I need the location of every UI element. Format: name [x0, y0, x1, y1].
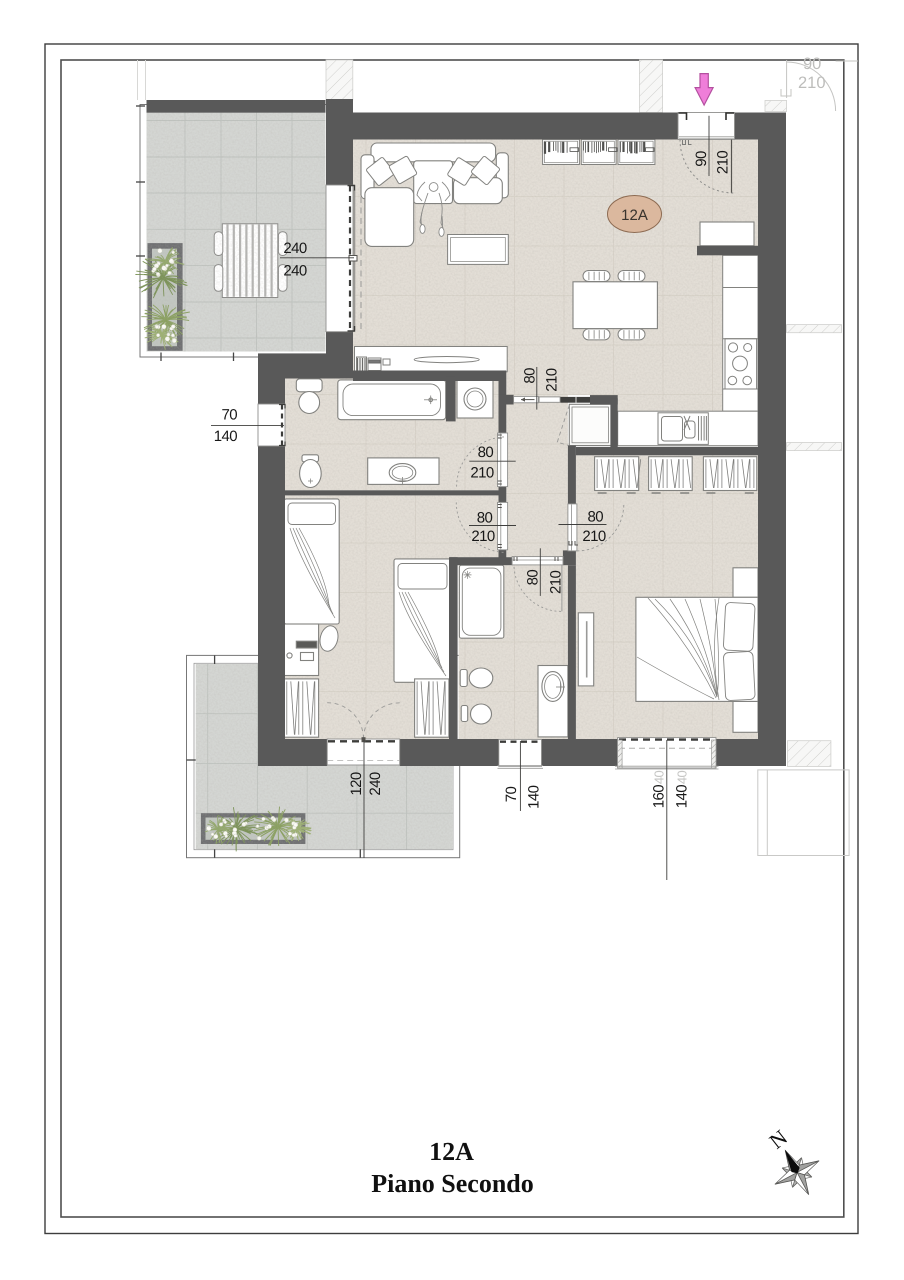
svg-text:80: 80: [478, 444, 494, 461]
svg-text:140: 140: [674, 785, 691, 808]
svg-text:160: 160: [651, 785, 668, 808]
svg-text:120: 120: [348, 772, 365, 795]
svg-text:240: 240: [283, 240, 306, 257]
svg-text:80: 80: [524, 570, 541, 586]
svg-text:140: 140: [214, 428, 237, 445]
svg-text:210: 210: [543, 368, 560, 391]
svg-text:210: 210: [470, 465, 493, 482]
svg-text:40: 40: [675, 771, 690, 785]
svg-text:12A: 12A: [621, 207, 648, 224]
svg-text:140: 140: [525, 785, 542, 808]
svg-text:90: 90: [803, 55, 821, 73]
svg-text:210: 210: [714, 151, 731, 174]
svg-text:240: 240: [283, 263, 306, 280]
svg-text:80: 80: [477, 510, 493, 527]
svg-text:240: 240: [367, 772, 384, 795]
svg-text:80: 80: [522, 368, 539, 384]
svg-text:80: 80: [588, 509, 604, 526]
svg-text:Piano Secondo: Piano Secondo: [371, 1169, 534, 1198]
svg-text:70: 70: [503, 787, 520, 803]
svg-text:40: 40: [652, 771, 667, 785]
svg-text:12A: 12A: [429, 1137, 474, 1166]
svg-text:70: 70: [222, 406, 238, 423]
svg-text:210: 210: [548, 571, 565, 594]
svg-text:210: 210: [798, 74, 826, 92]
svg-text:210: 210: [471, 528, 494, 545]
svg-text:210: 210: [582, 528, 605, 545]
svg-text:90: 90: [693, 151, 710, 167]
